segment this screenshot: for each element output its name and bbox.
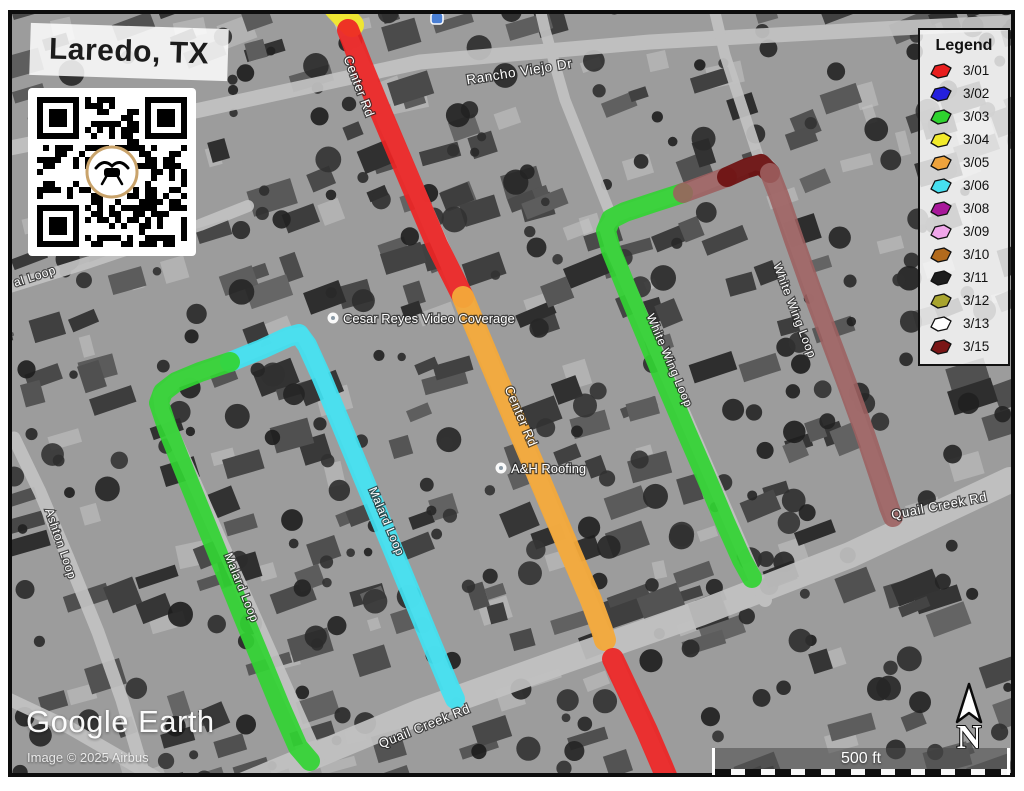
legend-swatch-icon (928, 177, 954, 195)
legend-title: Legend (920, 37, 1008, 55)
legend-row: 3/11 (920, 266, 1008, 289)
legend-date-label: 3/02 (963, 86, 989, 101)
map-title-text: Laredo, TX (48, 32, 209, 71)
legend-swatch-icon (928, 292, 954, 310)
legend-panel: Legend 3/013/023/033/043/053/063/083/093… (918, 28, 1010, 366)
scale-stripes (712, 769, 1010, 775)
poi-marker[interactable]: Cesar Reyes Video Coverage (328, 311, 515, 326)
legend-date-label: 3/13 (963, 316, 989, 331)
legend-swatch-icon (928, 108, 954, 126)
legend-date-label: 3/10 (963, 247, 989, 262)
legend-row: 3/15 (920, 335, 1008, 358)
legend-row: 3/06 (920, 174, 1008, 197)
legend-date-label: 3/15 (963, 339, 989, 354)
legend-date-label: 3/08 (963, 201, 989, 216)
legend-row: 3/08 (920, 197, 1008, 220)
poi-label: A&H Roofing (511, 461, 586, 476)
legend-date-label: 3/09 (963, 224, 989, 239)
legend-row: 3/05 (920, 151, 1008, 174)
legend-swatch-icon (928, 269, 954, 287)
legend-swatch-icon (928, 338, 954, 356)
legend-row: 3/12 (920, 289, 1008, 312)
legend-swatch-icon (928, 131, 954, 149)
legend-date-label: 3/06 (963, 178, 989, 193)
legend-swatch-icon (928, 62, 954, 80)
legend-date-label: 3/04 (963, 132, 989, 147)
blue-map-pin-icon[interactable] (431, 13, 443, 24)
legend-row: 3/04 (920, 128, 1008, 151)
legend-swatch-icon (928, 200, 954, 218)
legend-swatch-icon (928, 315, 954, 333)
legend-date-label: 3/12 (963, 293, 989, 308)
legend-row: 3/03 (920, 105, 1008, 128)
legend-row: 3/02 (920, 82, 1008, 105)
imagery-credit: Image © 2025 Airbus (27, 750, 149, 765)
legend-entries: 3/013/023/033/043/053/063/083/093/103/11… (920, 59, 1008, 358)
legend-date-label: 3/03 (963, 109, 989, 124)
legend-date-label: 3/11 (963, 270, 988, 285)
qr-code (28, 88, 196, 256)
legend-date-label: 3/05 (963, 155, 989, 170)
legend-row: 3/09 (920, 220, 1008, 243)
legend-swatch-icon (928, 154, 954, 172)
scale-label: 500 ft (841, 750, 881, 768)
legend-row: 3/01 (920, 59, 1008, 82)
legend-swatch-icon (928, 85, 954, 103)
scale-band: 500 ft (712, 748, 1010, 769)
map-title: Laredo, TX (29, 23, 229, 81)
legend-swatch-icon (928, 246, 954, 264)
poi-label: Cesar Reyes Video Coverage (343, 311, 515, 326)
legend-swatch-icon (928, 223, 954, 241)
legend-row: 3/10 (920, 243, 1008, 266)
legend-row: 3/13 (920, 312, 1008, 335)
scale-bar: 500 ft (712, 748, 1010, 775)
google-earth-watermark: Google Earth (26, 704, 215, 740)
legend-date-label: 3/01 (963, 63, 989, 78)
